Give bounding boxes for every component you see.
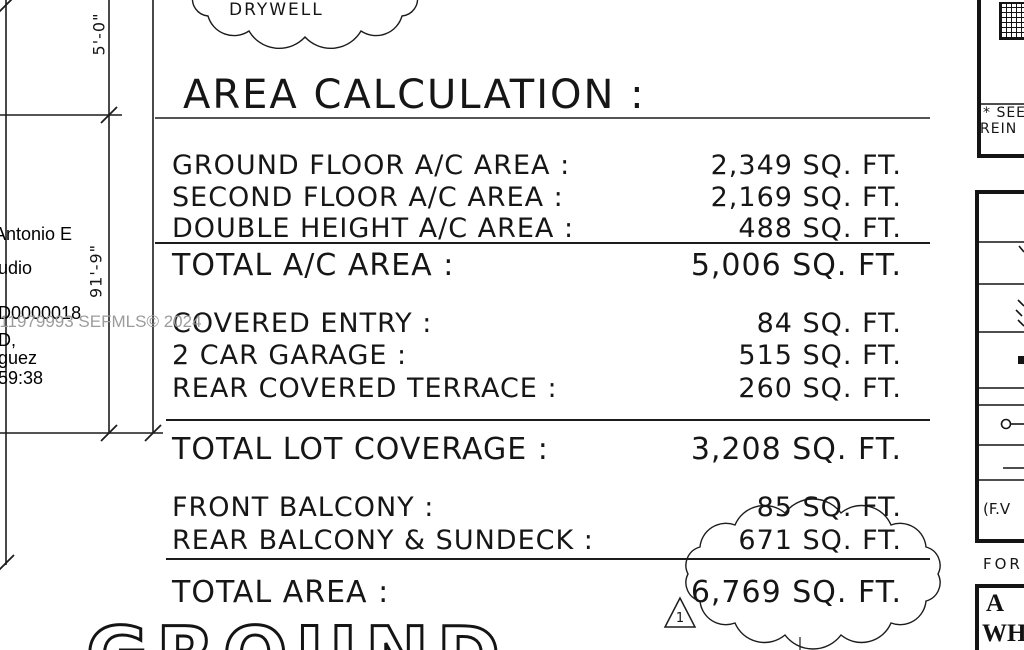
table-row-value: 84 SQ. FT. [757, 308, 902, 339]
table-row-label: REAR COVERED TERRACE : [172, 373, 558, 404]
table-row-label: DOUBLE HEIGHT A/C AREA : [172, 213, 574, 244]
page-title: AREA CALCULATION : [183, 72, 646, 118]
table-total-label: TOTAL AREA : [172, 576, 389, 610]
table-row-label: FRONT BALCONY : [172, 492, 434, 523]
table-row-value: 2,169 SQ. FT. [711, 182, 902, 213]
dimension-text-lower: 91'-9" [87, 244, 106, 298]
table-row-value: 515 SQ. FT. [738, 340, 902, 371]
for-label: FOR [983, 555, 1023, 573]
table-row-label: REAR BALCONY & SUNDECK : [172, 525, 594, 556]
watermark-line: Antonio E [0, 224, 72, 245]
table-row-label: 2 CAR GARAGE : [172, 340, 407, 371]
revision-number: 1 [676, 611, 684, 626]
plan-sheet: 1 DRYWELL 5'-0" 91'-9" AREA CALCUL [0, 0, 1024, 650]
table-total-label: TOTAL A/C AREA : [172, 249, 454, 283]
watermark-line: guez [0, 348, 37, 369]
table-row-value: 85 SQ. FT. [757, 492, 902, 523]
table-total-value: 5,006 SQ. FT. [691, 249, 902, 283]
table-row-value: 2,349 SQ. FT. [711, 150, 902, 181]
legend-fv-text: (F.V [983, 500, 1010, 518]
table-row-value: 260 SQ. FT. [738, 373, 902, 404]
table-total-label: TOTAL LOT COVERAGE : [172, 433, 549, 467]
mls-watermark: A11979993 SEFMLS© 2024 [0, 312, 202, 332]
dimension-text-upper: 5'-0" [90, 13, 109, 56]
stamp-line1: A [986, 590, 1004, 618]
drywell-label: DRYWELL [229, 0, 324, 20]
note-text-line1: * SEE [983, 105, 1024, 121]
table-total-value: 3,208 SQ. FT. [691, 433, 902, 467]
legend-box [975, 190, 1024, 543]
table-row-value: 488 SQ. FT. [738, 213, 902, 244]
dimension-ticks [0, 0, 161, 571]
table-total-value: 6,769 SQ. FT. [691, 576, 902, 610]
watermark-line: udio [0, 258, 32, 279]
table-row-value: 671 SQ. FT. [738, 525, 902, 556]
stamp-line2: WH [982, 620, 1024, 648]
watermark-line: 59:38 [0, 368, 43, 389]
note-text-line2: REIN [980, 121, 1017, 137]
table-row-label: COVERED ENTRY : [172, 308, 432, 339]
table-row-label: SECOND FLOOR A/C AREA : [172, 182, 564, 213]
sheet-heading-ground: GROUND [86, 610, 508, 650]
table-row-label: GROUND FLOOR A/C AREA : [172, 150, 570, 181]
mesh-detail-icon [999, 2, 1024, 40]
